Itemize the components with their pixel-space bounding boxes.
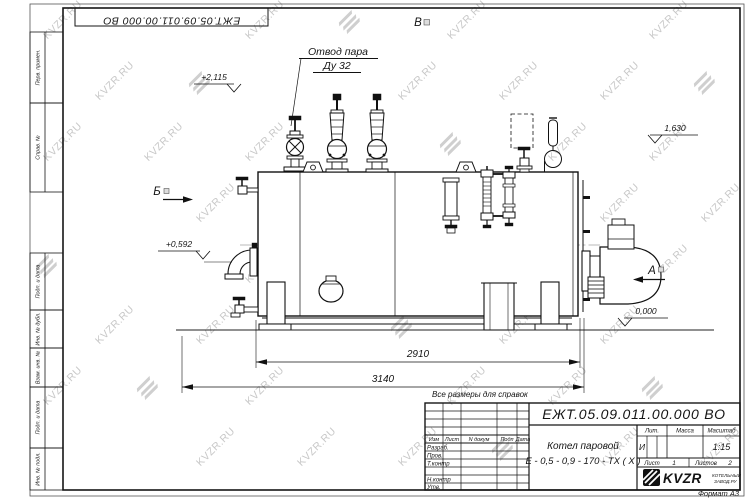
margin-label: Взам. инв. № [36,351,42,385]
margin-label: Перв. примен. [36,50,42,86]
sig-row-label: Т.контр [427,462,450,468]
lit-header: Лит. [644,429,659,435]
drawing-sheet: KVZR.RUKVZR.RUKVZR.RUKVZR.RUKVZR.RUKVZR.… [0,0,750,500]
drain-valve [231,297,258,317]
liter-value: И [639,442,646,452]
mass-header: Масса [676,429,694,435]
boiler-assembly-view [176,94,714,330]
company-caption: КОТЕЛЬНЫЙ [712,471,742,478]
sheets-label: Листов [694,461,717,467]
margin-label: Справ. № [36,135,42,160]
view-letter: В [414,17,422,29]
dimension-shell-length: 2910 [256,318,580,368]
reference-note: Все размеры для справок [432,390,529,399]
sig-row-label: Н.контр [427,478,451,484]
callout-text: Ду 32 [322,60,351,72]
dimension-value: 3140 [372,374,395,385]
burner [582,219,661,304]
sheet-value: 1 [672,460,676,467]
view-label-left: Б [153,186,193,203]
format-label: Формат А3 [698,489,740,498]
mirrored-designation: ЕЖТ.05.09.011.00.000 ВО [103,15,241,27]
safety-valve [326,94,348,172]
elevation-value: 0,000 [635,306,657,316]
sig-row-label: Разраб. [427,446,449,452]
margin-label: Инв. № дубл. [36,312,42,345]
callout-text: Отвод пара [308,46,368,58]
sig-row-label: Утв. [426,485,441,491]
safety-valve [366,94,388,172]
product-name: Котел паровой [547,441,619,452]
technical-drawing-svg: Перв. примен. Справ. № Подп. и дата Инв.… [0,0,750,500]
designation: ЕЖТ.05.09.011.00.000 ВО [542,406,726,422]
margin-label: Инв. № подл. [36,452,42,485]
elevation-value: +2,115 [201,72,227,82]
dimension-overall-length: 3140 [182,318,584,393]
steam-outlet-valve [284,116,306,171]
top-right-fittings [511,114,562,172]
company-logo: KVZR КОТЕЛЬНЫЙ ЗАВОД.РУ [643,469,742,486]
margin-label: Подп. и дата [36,265,42,299]
boiler-shell [258,172,590,316]
scale-header: Масштаб [707,429,736,435]
col-header: N докум [469,437,490,443]
elevation-value: +0,592 [166,239,193,249]
left-top-valve [236,177,258,194]
left-margin-labels: Перв. примен. Справ. № Подп. и дата Инв.… [36,50,42,486]
product-name: Е - 0,5 - 0,9 - 170 - ТХ ( Х ) [525,456,640,467]
level-sensor-column [443,178,459,233]
flue-duct [481,283,517,330]
view-letter: А [647,265,656,277]
sheets-value: 2 [727,460,732,467]
top-designation-box: ЕЖТ.05.09.011.00.000 ВО [75,8,268,27]
scale-value: 1:15 [713,442,732,452]
view-label-top: В [414,17,429,29]
sheet-label: Лист [643,461,659,467]
col-header: Подп [500,437,513,443]
view-letter: Б [153,186,161,198]
company-name: KVZR [663,471,702,486]
margin-label: Подп. и дата [36,401,42,435]
col-header: Дата [515,437,531,443]
dimension-value: 2910 [406,349,430,360]
col-header: Изм [429,437,439,443]
elevation-value: 1,630 [664,123,686,133]
feed-elbow [225,243,257,279]
sig-row-label: Пров. [427,454,443,460]
lifting-lug [456,162,476,172]
col-header: Лист [444,437,460,443]
lifting-lug [303,162,323,172]
company-caption: ЗАВОД.РУ [714,479,738,484]
